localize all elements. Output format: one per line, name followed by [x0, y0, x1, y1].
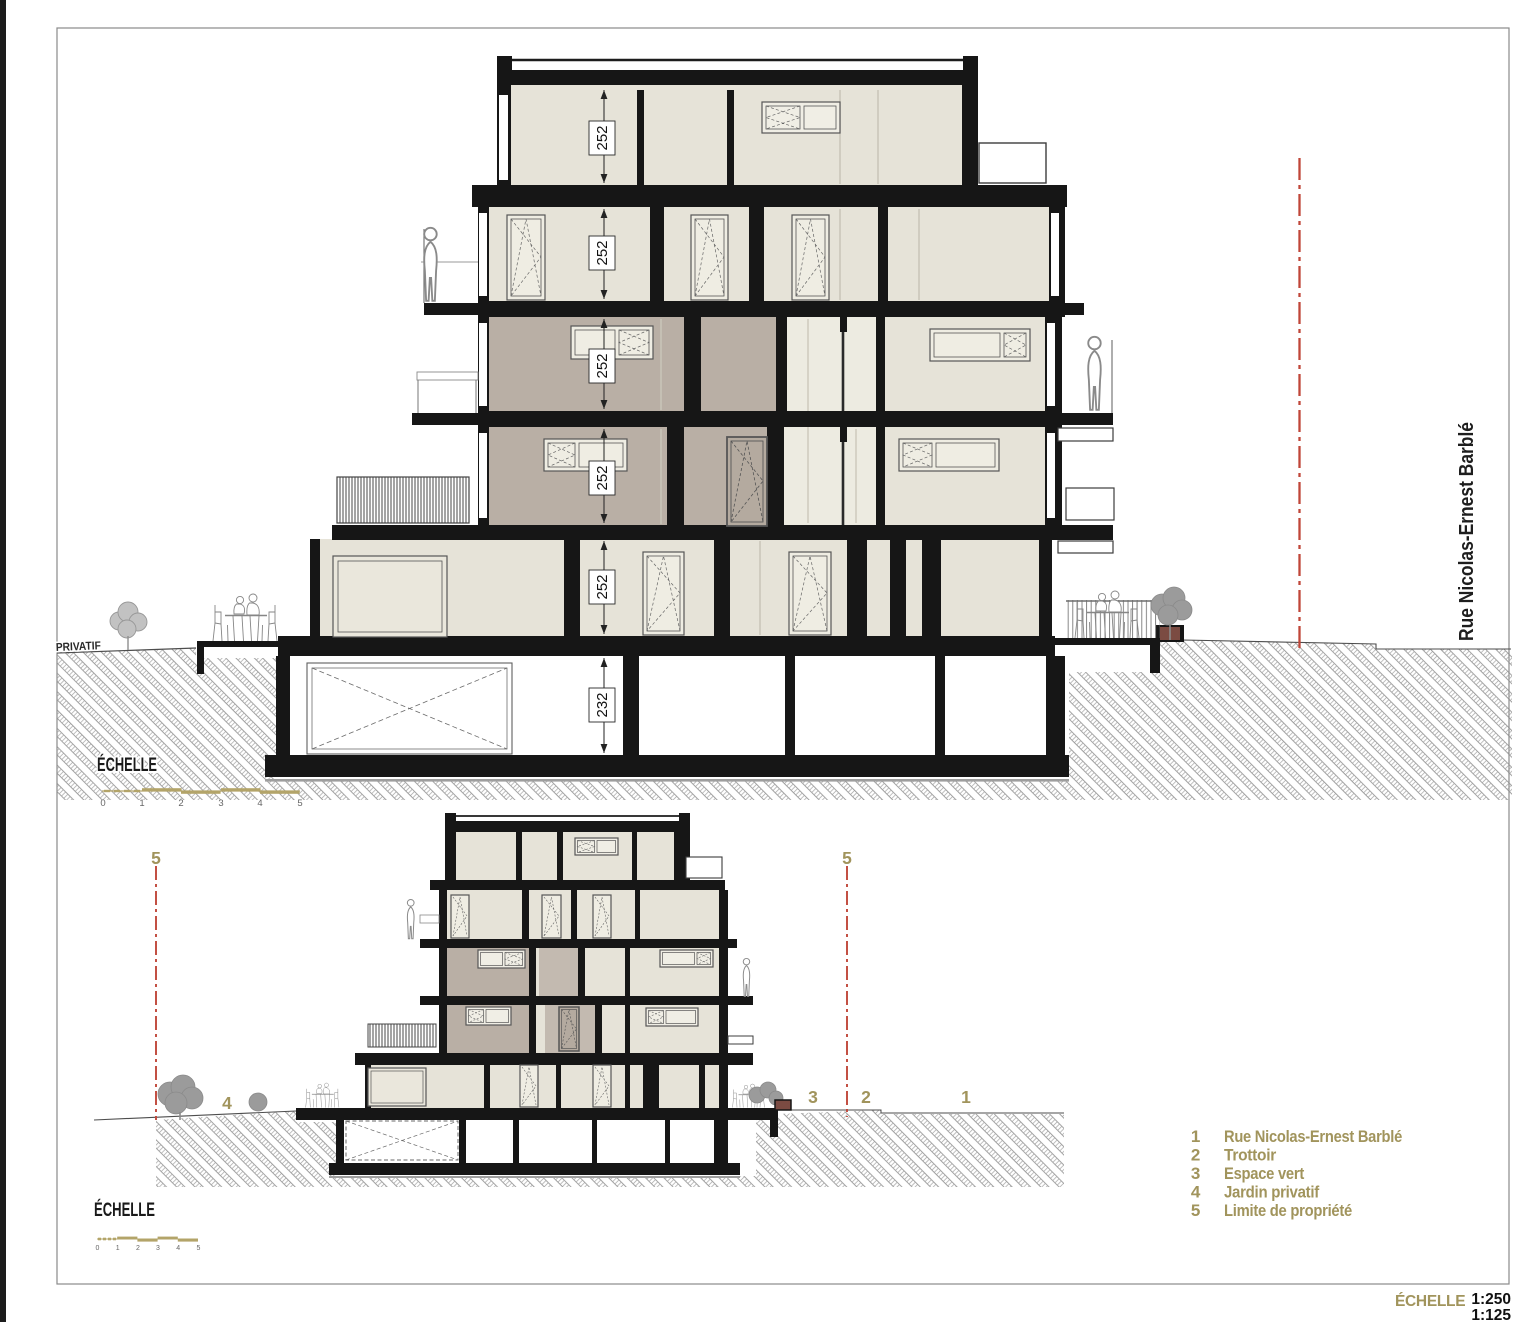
- svg-text:3: 3: [808, 1087, 818, 1107]
- svg-text:252: 252: [594, 574, 611, 599]
- svg-text:Espace vert: Espace vert: [1224, 1164, 1305, 1183]
- svg-text:5: 5: [196, 1245, 200, 1252]
- svg-text:252: 252: [594, 465, 611, 490]
- svg-text:4: 4: [176, 1245, 180, 1252]
- svg-text:4: 4: [257, 798, 262, 809]
- svg-text:1: 1: [116, 1245, 120, 1252]
- svg-text:1: 1: [961, 1087, 971, 1107]
- svg-text:4: 4: [1191, 1183, 1201, 1202]
- svg-text:5: 5: [842, 848, 852, 868]
- svg-text:Rue Nicolas-Ernest Barblé: Rue Nicolas-Ernest Barblé: [1455, 422, 1478, 641]
- svg-text:Limite de propriété: Limite de propriété: [1224, 1201, 1352, 1220]
- svg-text:232: 232: [594, 692, 611, 717]
- svg-text:1:250: 1:250: [1471, 1291, 1511, 1308]
- svg-text:Rue Nicolas-Ernest Barblé: Rue Nicolas-Ernest Barblé: [1224, 1127, 1402, 1146]
- svg-text:2: 2: [1191, 1146, 1200, 1165]
- svg-text:2: 2: [178, 798, 183, 809]
- svg-text:ÉCHELLE: ÉCHELLE: [97, 754, 157, 776]
- svg-text:5: 5: [1191, 1201, 1200, 1220]
- svg-text:252: 252: [594, 125, 611, 150]
- svg-text:0: 0: [96, 1245, 100, 1252]
- svg-text:PRIVATIF: PRIVATIF: [56, 640, 101, 654]
- svg-text:0: 0: [100, 798, 105, 809]
- svg-text:4: 4: [222, 1093, 232, 1113]
- svg-text:ÉCHELLE: ÉCHELLE: [94, 1199, 155, 1221]
- svg-text:1: 1: [139, 798, 144, 809]
- svg-text:Trottoir: Trottoir: [1224, 1146, 1277, 1165]
- svg-text:2: 2: [136, 1245, 140, 1252]
- svg-text:2: 2: [861, 1087, 871, 1107]
- svg-text:1: 1: [1191, 1127, 1200, 1146]
- svg-text:252: 252: [594, 353, 611, 378]
- svg-text:252: 252: [594, 240, 611, 265]
- svg-text:5: 5: [297, 798, 302, 809]
- svg-text:3: 3: [156, 1245, 160, 1252]
- svg-text:ÉCHELLE: ÉCHELLE: [1395, 1293, 1465, 1310]
- svg-text:5: 5: [151, 848, 161, 868]
- svg-text:3: 3: [218, 798, 223, 809]
- svg-text:Jardin privatif: Jardin privatif: [1224, 1183, 1320, 1202]
- svg-text:3: 3: [1191, 1164, 1200, 1183]
- svg-text:1:125: 1:125: [1471, 1307, 1511, 1322]
